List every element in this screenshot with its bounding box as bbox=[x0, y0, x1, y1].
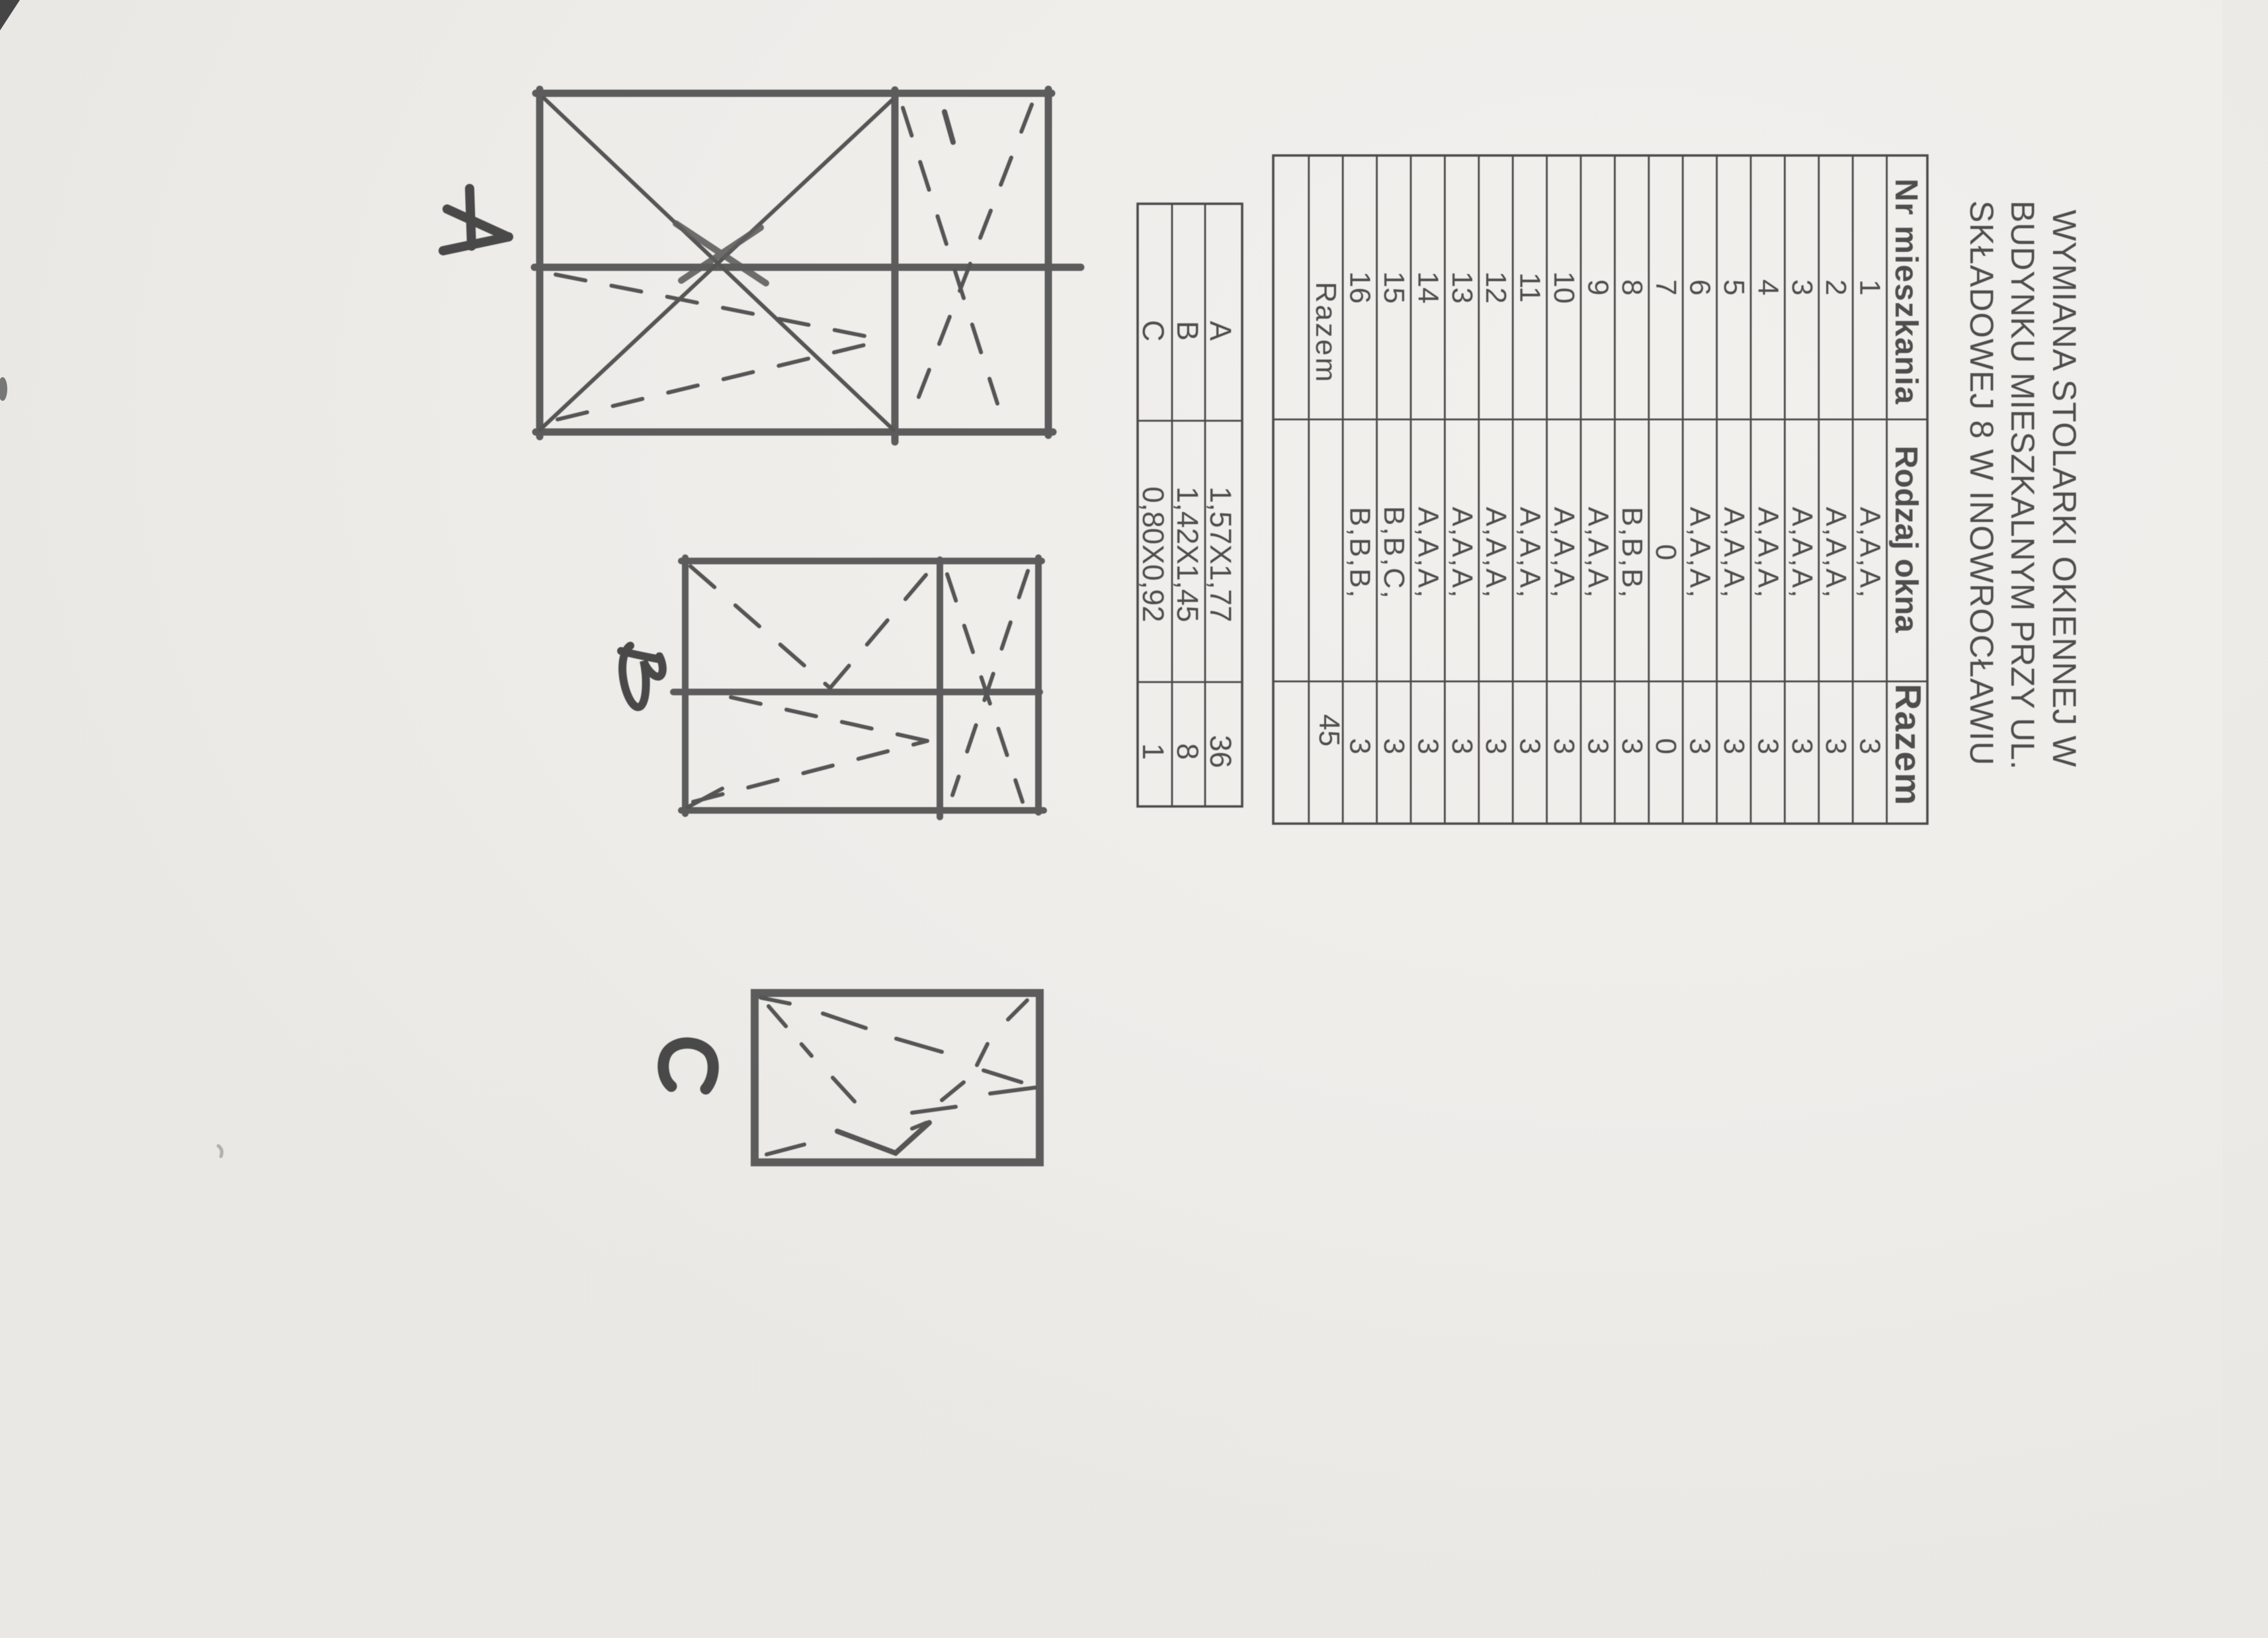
svg-text:B,B,B,: B,B,B, bbox=[1344, 507, 1376, 599]
svg-text:Razem: Razem bbox=[1310, 282, 1342, 384]
svg-text:B,B,C,: B,B,C, bbox=[1378, 506, 1410, 600]
svg-text:45: 45 bbox=[1313, 714, 1345, 747]
svg-text:3: 3 bbox=[1684, 738, 1716, 754]
svg-text:1,42X1,45: 1,42X1,45 bbox=[1171, 486, 1204, 622]
svg-text:3: 3 bbox=[1786, 279, 1818, 295]
svg-text:3: 3 bbox=[1786, 738, 1818, 754]
svg-text:A,A,A,: A,A,A, bbox=[1446, 507, 1478, 599]
svg-text:0: 0 bbox=[1650, 738, 1682, 754]
svg-text:8: 8 bbox=[1171, 743, 1204, 759]
svg-text:3: 3 bbox=[1581, 738, 1614, 754]
svg-text:A,A,A,: A,A,A, bbox=[1411, 507, 1444, 599]
svg-text:Nr mieszkania: Nr mieszkania bbox=[1888, 179, 1923, 405]
svg-text:A: A bbox=[1204, 321, 1238, 341]
svg-text:B: B bbox=[1171, 321, 1204, 341]
svg-text:0,80X0,92: 0,80X0,92 bbox=[1136, 486, 1170, 622]
svg-text:1,57X1,77: 1,57X1,77 bbox=[1204, 486, 1238, 622]
svg-text:Rodzaj okna: Rodzaj okna bbox=[1888, 446, 1923, 633]
svg-text:10: 10 bbox=[1548, 271, 1580, 304]
svg-text:1: 1 bbox=[1854, 279, 1886, 295]
svg-text:Razem: Razem bbox=[1888, 684, 1929, 806]
svg-text:9: 9 bbox=[1581, 279, 1614, 295]
svg-text:7: 7 bbox=[1650, 279, 1682, 295]
svg-text:3: 3 bbox=[1751, 738, 1784, 754]
svg-text:3: 3 bbox=[1344, 738, 1376, 754]
svg-text:A,A,A,: A,A,A, bbox=[1751, 507, 1784, 599]
svg-text:11: 11 bbox=[1514, 273, 1546, 303]
svg-text:5: 5 bbox=[1718, 279, 1750, 295]
svg-text:C: C bbox=[1136, 320, 1170, 342]
svg-text:A,A,A,: A,A,A, bbox=[1548, 507, 1580, 599]
svg-text:3: 3 bbox=[1616, 738, 1648, 754]
svg-text:3: 3 bbox=[1480, 738, 1512, 754]
svg-text:A,A,A,: A,A,A, bbox=[1820, 507, 1852, 599]
svg-text:A,A,A,: A,A,A, bbox=[1514, 507, 1546, 599]
svg-text:A,A,A,: A,A,A, bbox=[1718, 507, 1750, 599]
svg-text:A,A,A,: A,A,A, bbox=[1854, 507, 1886, 599]
svg-text:3: 3 bbox=[1820, 738, 1852, 754]
svg-text:SKŁADOWEJ 8 W INOWROCŁAWIU: SKŁADOWEJ 8 W INOWROCŁAWIU bbox=[1963, 200, 2000, 766]
svg-text:1: 1 bbox=[1136, 743, 1170, 759]
svg-text:16: 16 bbox=[1344, 271, 1376, 304]
svg-text:2: 2 bbox=[1820, 279, 1852, 295]
svg-text:12: 12 bbox=[1480, 271, 1512, 304]
svg-text:3: 3 bbox=[1446, 738, 1478, 754]
svg-text:BUDYNKU MIESZKALNYM PRZY UL.: BUDYNKU MIESZKALNYM PRZY UL. bbox=[2004, 200, 2041, 769]
svg-text:3: 3 bbox=[1718, 738, 1750, 754]
svg-text:36: 36 bbox=[1204, 735, 1238, 768]
svg-text:0: 0 bbox=[1650, 544, 1682, 562]
svg-text:3: 3 bbox=[1411, 738, 1444, 754]
svg-text:3: 3 bbox=[1548, 738, 1580, 754]
svg-text:3: 3 bbox=[1854, 738, 1886, 754]
svg-text:15: 15 bbox=[1378, 271, 1410, 304]
svg-text:6: 6 bbox=[1684, 279, 1716, 295]
svg-text:A,A,A,: A,A,A, bbox=[1480, 507, 1512, 599]
svg-text:8: 8 bbox=[1616, 279, 1648, 295]
svg-text:WYMIANA STOLARKI OKIENNEJ W: WYMIANA STOLARKI OKIENNEJ W bbox=[2046, 210, 2083, 767]
svg-text:A,A,A,: A,A,A, bbox=[1786, 507, 1818, 599]
svg-text:3: 3 bbox=[1514, 738, 1546, 754]
svg-text:3: 3 bbox=[1378, 738, 1410, 754]
svg-text:B,B,B,: B,B,B, bbox=[1616, 507, 1648, 599]
svg-text:14: 14 bbox=[1411, 271, 1444, 304]
svg-text:A,A,A,: A,A,A, bbox=[1581, 507, 1614, 599]
svg-text:4: 4 bbox=[1751, 279, 1784, 295]
svg-text:13: 13 bbox=[1446, 271, 1478, 304]
svg-text:A,A,A,: A,A,A, bbox=[1684, 507, 1716, 599]
